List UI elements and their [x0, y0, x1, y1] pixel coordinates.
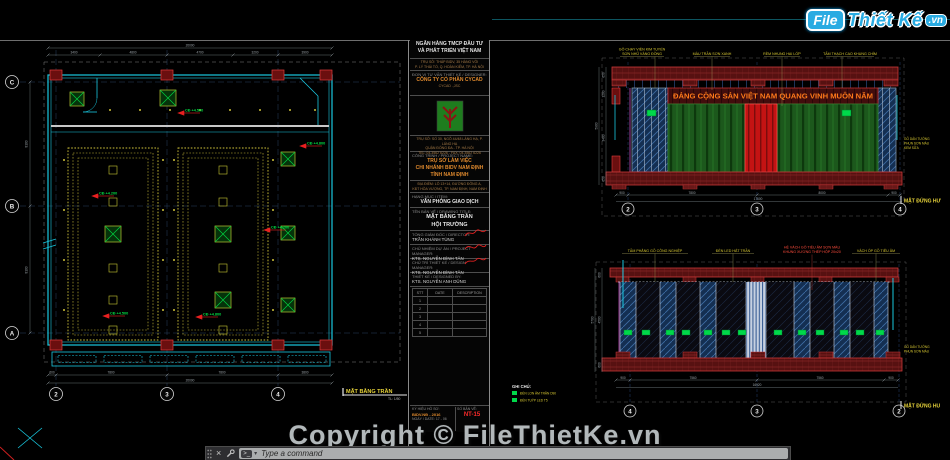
small-fixtures-yellow: [109, 166, 227, 334]
designer-addr-2: QUẬN ĐỐNG ĐA - TP. HÀ NỘI: [425, 146, 473, 150]
level-text: CĐ +4.800: [307, 142, 325, 146]
grid-bubble-label: 4: [628, 408, 632, 415]
dim-text: 4700: [196, 50, 203, 54]
customize-wrench-icon[interactable]: [224, 449, 237, 458]
client-addr-1: TRỤ SỞ: THÁP BIDV, 35 HÀNG VÔI: [421, 60, 478, 64]
sheet-number-value: NT-15: [464, 412, 480, 418]
dim-text: 8100: [25, 140, 29, 147]
dim-text: 1200: [602, 90, 606, 97]
elevations-viewport[interactable]: ĐẢNG CỘNG SẢN VIỆT NAM QUANG VINH MUÔN N…: [490, 40, 950, 460]
rev-row-num: 1: [413, 297, 428, 305]
light-fixtures-green: [70, 90, 295, 312]
logo-name-text: Thiết Kế: [848, 10, 923, 31]
dim-text: 900: [620, 376, 626, 380]
dim-text: 600: [598, 362, 602, 368]
acoustic-panel-strip: [620, 282, 888, 358]
wall-returns: [612, 88, 620, 172]
plan-boundary: [44, 62, 400, 362]
elev1-grid-bubbles: 2 3 4: [622, 203, 906, 215]
exit-light: [647, 110, 656, 116]
legend-swatch-green: [512, 391, 517, 395]
plan-dims-top: 20000 3400 4800 4700 3200 3900: [47, 44, 334, 57]
stage-base-band: [606, 172, 902, 185]
legend-item: ĐÈN LON ÂM TRẦN D90: [520, 391, 556, 396]
dim-text: 8100: [25, 266, 29, 273]
rev-row-num: 4: [413, 321, 428, 329]
logo-tld-badge: .vn: [925, 14, 947, 27]
client-addr-2: P. LÝ THÁI TỔ, Q. HOÀN KIẾM, TP. HÀ NỘI: [415, 65, 484, 69]
dim-text: 650: [602, 72, 606, 78]
elev2-side-notes: GỖ DÁN TƯỜNG PHUN SƠN MÀU MẶT ĐỨNG HU: [901, 344, 940, 410]
grid-bubble-label: 2: [54, 391, 58, 398]
grid-bubble-label: 2: [897, 408, 901, 415]
rev-row-num: 2: [413, 305, 428, 313]
designer-name: CÔNG TY CỔ PHẦN CYCAD: [416, 77, 482, 83]
side-note: PHUN SƠN MÀU: [904, 350, 930, 354]
side-note: KEM SỮA: [904, 145, 920, 150]
tb-design-lead: CHỦ TRÌ THIẾT KẾ / DESIGN MANAGER: KTS. …: [410, 259, 489, 273]
level-text: CĐ +4.500: [110, 312, 128, 316]
dim-text: 650: [602, 176, 606, 182]
command-placeholder: Type a command: [261, 449, 322, 458]
plan-title: MẶT BẰNG TRẦN: [346, 387, 392, 395]
dim-text: 3900: [301, 50, 308, 54]
rev-row-num: 3: [413, 313, 428, 321]
designer-sub: CYCAD .,JSC: [439, 84, 461, 88]
signature-icon: [463, 227, 487, 239]
client-name-2: VÀ PHÁT TRIỂN VIỆT NAM: [418, 48, 482, 54]
chevron-down-icon[interactable]: ▾: [254, 450, 257, 457]
legend-swatch-green: [512, 398, 517, 402]
dim-text: 7800: [107, 370, 114, 374]
elevation-1: ĐẢNG CỘNG SẢN VIỆT NAM QUANG VINH MUÔN N…: [595, 47, 942, 217]
plan-dims-bottom: 600 7800 7800 3800 20000: [47, 370, 334, 384]
plan-dims-left: 8100 8100: [25, 81, 32, 335]
dim-text: 8000: [818, 191, 825, 195]
signature-icon: [463, 241, 487, 253]
close-icon[interactable]: ×: [213, 449, 224, 458]
rev-row-num: 5: [413, 329, 428, 337]
dim-text: 3800: [301, 370, 308, 374]
top-cornice-band: [610, 268, 898, 277]
project-name-3: TỈNH NAM ĐỊNH: [430, 172, 468, 178]
dim-text: 7560: [816, 376, 823, 380]
title-block: NGÂN HÀNG TMCP ĐẦU TƯ VÀ PHÁT TRIỂN VIỆT…: [410, 40, 489, 432]
dim-text: 900: [891, 191, 897, 195]
sheet-number-label: SỐ BẢN VẼ:: [457, 407, 477, 411]
tb-revision-table: STT DATE DESCRIPTION 1 2 3 4 5: [410, 287, 489, 406]
bottom-left-geometry: [0, 428, 42, 460]
lead-label: CHỦ TRÌ THIẾT KẾ / DESIGN MANAGER:: [412, 260, 466, 270]
signature-icon: [463, 255, 487, 267]
grid-bubble-label: 4: [276, 391, 280, 398]
grid-bubble-label: A: [10, 330, 15, 337]
level-markers: CĐ +4.500 CĐ +4.200 CĐ +4.800 CĐ +4.500 …: [92, 109, 325, 320]
dim-text: 4500: [598, 316, 602, 323]
project-name-2: CHI NHÁNH BIDV NAM ĐỊNH: [416, 165, 484, 171]
drawing-title-1: MẶT BẰNG TRẦN: [426, 214, 472, 220]
dim-text: 4800: [129, 50, 136, 54]
rev-col-date: DATE: [428, 289, 453, 297]
dim-text: 20000: [186, 378, 195, 382]
base-plinths: [612, 185, 898, 189]
legend: GHI CHÚ: ĐÈN LON ÂM TRẦN D90 ĐÈN TUÝP LE…: [512, 384, 556, 403]
plan-title-group: MẶT BẰNG TRẦN TL: 1/50: [343, 387, 407, 401]
client-name-1: NGÂN HÀNG TMCP ĐẦU TƯ: [416, 41, 483, 47]
callout-text: SƠN NHŨ VÀNG ĐỒNG: [622, 51, 662, 56]
grid-bubble-label: C: [10, 79, 15, 86]
grid-bubble-label: 4: [898, 206, 902, 213]
legend-item: ĐÈN TUÝP LED T5: [520, 398, 548, 403]
command-input[interactable]: >_ ▾ Type a command: [239, 448, 788, 459]
tb-logo: [410, 96, 489, 136]
project-name-1: TRỤ SỞ LÀM VIỆC: [427, 158, 472, 164]
level-text: CĐ +4.200: [271, 226, 289, 230]
callout-text: ĐÈN LED HẮT TRẦN: [716, 248, 751, 253]
command-prompt-icon[interactable]: >_: [241, 450, 252, 458]
side-note: PHUN SƠN MÀU: [904, 142, 930, 146]
grid-bubble-label: 3: [755, 206, 759, 213]
center-striped-column: [746, 282, 766, 358]
base-band: [602, 358, 902, 371]
cornice-capitals: [616, 277, 899, 282]
tb-project: CÔNG TRÌNH / PROJECT NAME: TRỤ SỞ LÀM VI…: [410, 152, 489, 181]
red-flag-backdrop: [745, 104, 777, 172]
grid-bubble-label: 3: [755, 408, 759, 415]
elev2-grid-bubbles: 4 3 2: [624, 405, 905, 417]
callout-text: VÁCH ỐP GỖ TIÊU ÂM: [857, 248, 895, 253]
side-note: GỖ DÁN TƯỜNG: [904, 136, 930, 141]
dim-text: 600: [49, 370, 55, 374]
logo-file-badge: File: [806, 9, 844, 31]
elev1-side-notes: GỖ DÁN TƯỜNG PHUN SƠN MÀU KEM SỮA MẶT ĐỨ…: [901, 136, 941, 205]
dim-text: 17600: [754, 197, 763, 201]
elev2-title-cut: MẶT ĐỨNG HU: [904, 403, 940, 410]
tb-client-address: TRỤ SỞ: THÁP BIDV, 35 HÀNG VÔI P. LÝ THÁ…: [410, 59, 489, 71]
grid-bubble-label: 3: [165, 391, 169, 398]
location-2: KĐT HÒA VƯỢNG, TP. NAM ĐỊNH, NAM ĐỊNH: [412, 187, 486, 191]
ceiling-plan-viewport[interactable]: 20000 3400 4800 4700 3200 3900 8100 8100: [0, 40, 410, 460]
tb-client: NGÂN HÀNG TMCP ĐẦU TƯ VÀ PHÁT TRIỂN VIỆT…: [410, 40, 489, 59]
level-text: CĐ +4.500: [185, 109, 203, 113]
grid-bubble-label: B: [10, 203, 15, 210]
elev1-title-cut: MẶT ĐỨNG HƯ: [904, 198, 941, 205]
designer-addr-1: TRỤ SỞ: SỐ 30, NGÕ 44/48 LÁNG HẠ, P. LÁN…: [416, 137, 482, 146]
dim-text: 16920: [753, 383, 762, 387]
dim-text: 20000: [186, 44, 195, 48]
tb-designer-address: TRỤ SỞ: SỐ 30, NGÕ 44/48 LÁNG HẠ, P. LÁN…: [410, 136, 489, 152]
dim-text: 900: [888, 376, 894, 380]
autocad-window: 20000 3400 4800 4700 3200 3900 8100 8100: [0, 0, 950, 460]
dim-text: 7800: [688, 191, 695, 195]
side-note: GỖ DÁN TƯỜNG: [904, 344, 930, 349]
callout-text: GỖ CHẠY VIỀN KIM TUYẾN: [619, 47, 666, 52]
slogan-banner-text: ĐẢNG CỘNG SẢN VIỆT NAM QUANG VINH MUÔN N…: [673, 92, 873, 101]
legend-title: GHI CHÚ:: [512, 384, 531, 389]
ceiling-coffers: [68, 148, 268, 340]
corridor-band: [52, 352, 330, 366]
dim-text: 5900: [595, 122, 599, 129]
callout-text: RÈM NHUNG HAI LỚP: [763, 51, 801, 56]
tb-item: HẠNG MỤC / ITEM: VĂN PHÒNG GIAO DỊCH: [410, 193, 489, 208]
dim-text: 3400: [70, 50, 77, 54]
dim-text: 3200: [251, 50, 258, 54]
rev-col-desc: DESCRIPTION: [453, 289, 487, 297]
dim-text: 900: [619, 191, 625, 195]
dim-text: 5700: [591, 316, 595, 323]
level-text: CĐ +4.800: [203, 313, 221, 317]
issue-value: BIDV.NĐ - 2016: [412, 412, 441, 417]
grid-bubble-label: 2: [626, 206, 630, 213]
pm-label: CHỦ NHIỆM DỰ ÁN / PROJECT MANAGER:: [412, 246, 471, 256]
tb-location: ĐỊA ĐIỂM: LÔ 13+14, ĐƯỜNG ĐÔNG A, KĐT HÒ…: [410, 181, 489, 193]
filethietke-logo: File Thiết Kế .vn: [806, 4, 947, 36]
dim-text: 3400: [602, 134, 606, 141]
designed-name: KTS. NGUYỄN ANH DŨNG: [412, 279, 466, 284]
designer-logo: [436, 100, 464, 132]
viewport-divider-right: [489, 40, 490, 447]
dim-text: 600: [598, 272, 602, 278]
location-1: ĐỊA ĐIỂM: LÔ 13+14, ĐƯỜNG ĐÔNG A,: [417, 182, 481, 186]
level-text: CĐ +4.200: [99, 192, 117, 196]
command-bar[interactable]: × >_ ▾ Type a command: [205, 446, 791, 460]
callout-text-red: HỆ VÁCH GỖ TIÊU ÂM SƠN MÀU: [784, 245, 841, 250]
exit-light: [842, 110, 851, 116]
director-name: TRẦN KHÁNH TÙNG: [412, 237, 454, 242]
callout-text: MÀU TRẦN SƠN XANH: [693, 52, 732, 56]
callout-text-red: KHUNG XƯƠNG THÉP HỘP 20x20: [783, 249, 841, 254]
plan-scale: TL: 1/50: [388, 397, 401, 401]
command-bar-grip[interactable]: [206, 447, 213, 460]
callout-text: TẤM THẠCH CAO KHUNG CHÌM: [823, 52, 877, 56]
dim-text: 7800: [218, 370, 225, 374]
elevation-2: TẤM PHẲNG GỖ CÔNG NGHIỆP ĐÈN LED HẮT TRẦ…: [512, 245, 940, 418]
dim-text: 7560: [689, 376, 696, 380]
rev-col-stt: STT: [413, 289, 428, 297]
callout-text: TẤM PHẲNG GỖ CÔNG NGHIỆP: [628, 248, 683, 253]
viewport-divider-left: [408, 40, 409, 447]
item-value: VĂN PHÒNG GIAO DỊCH: [420, 199, 478, 205]
tb-designer: ĐƠN VỊ TƯ VẤN THIẾT KẾ / DESIGNER: CÔNG …: [410, 71, 489, 96]
issue-label: KÝ HIỆU HỒ SƠ:: [412, 407, 440, 411]
lead-name: KTS. NGUYỄN ĐÌNH TÂN: [412, 270, 464, 275]
